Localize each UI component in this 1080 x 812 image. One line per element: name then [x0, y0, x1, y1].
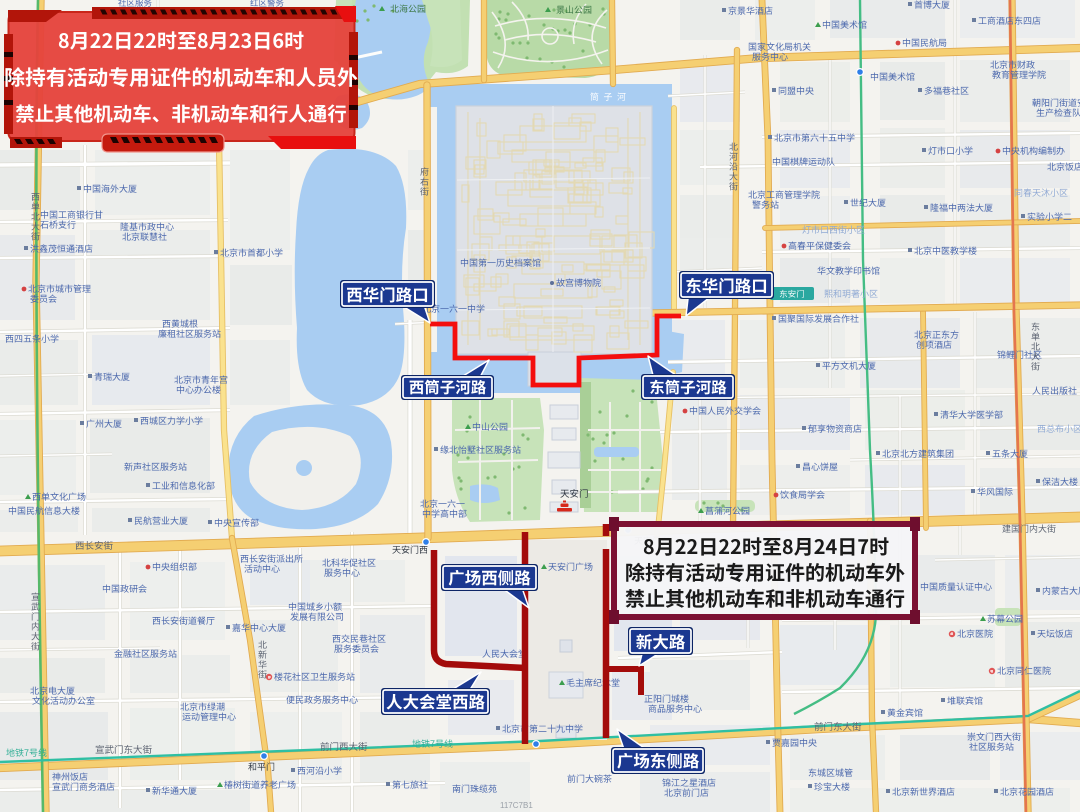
- svg-text:117C7B1: 117C7B1: [500, 801, 533, 810]
